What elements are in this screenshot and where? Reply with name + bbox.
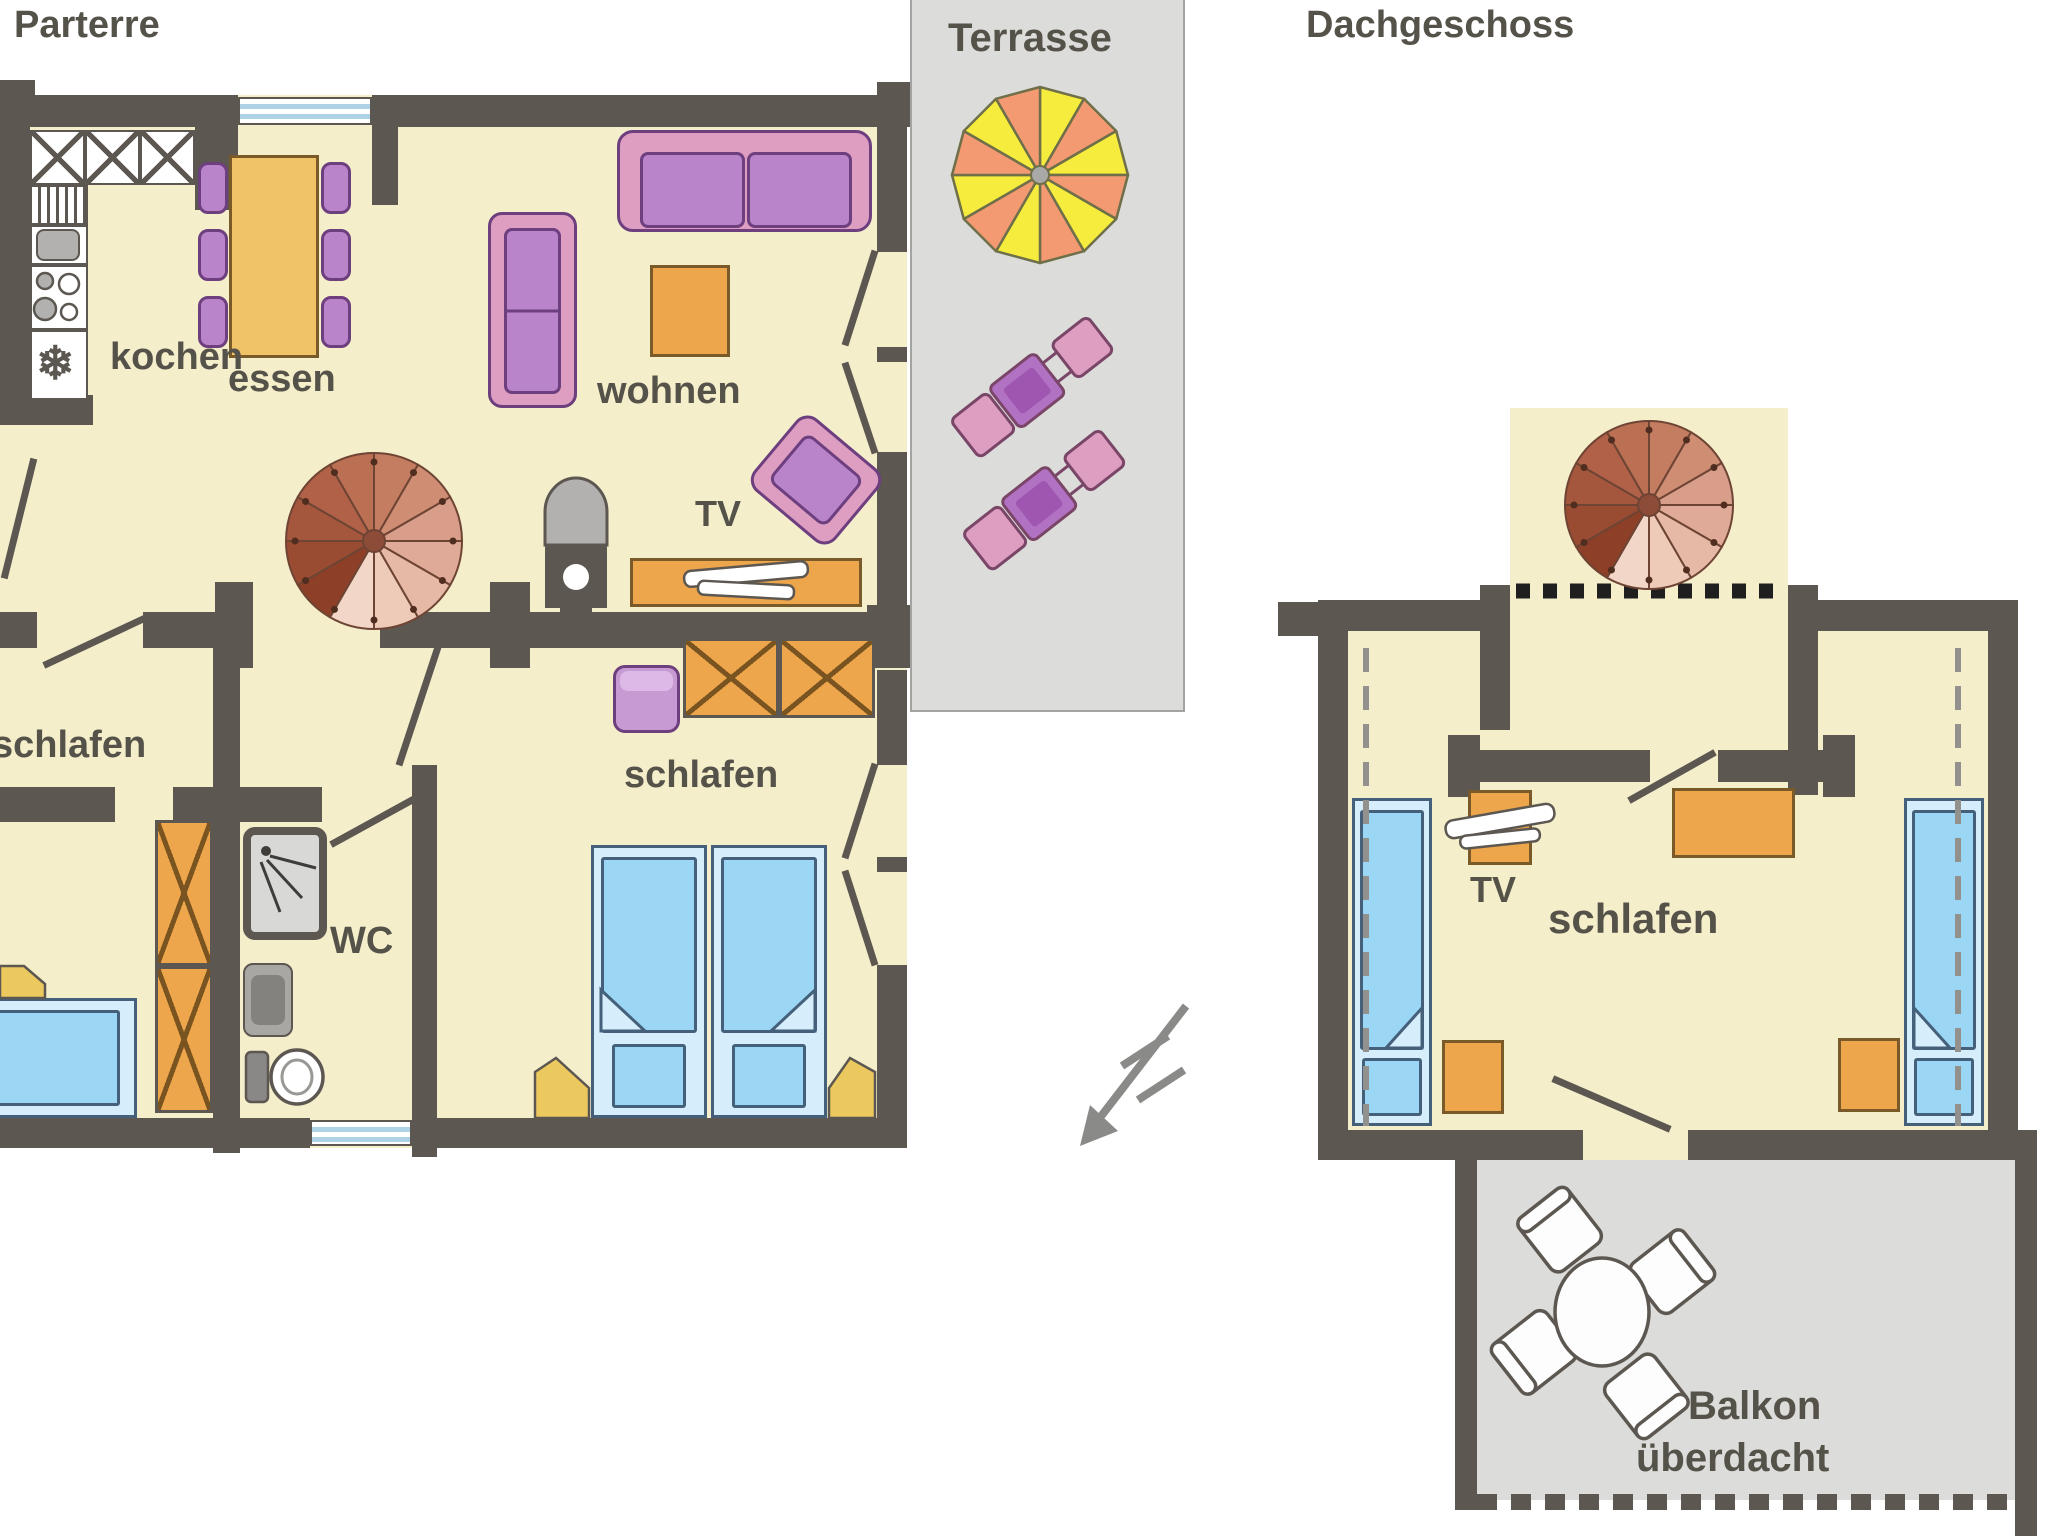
bed-pillow: [612, 1044, 686, 1108]
tv-label-dach: TV: [1470, 872, 1516, 908]
living-label: wohnen: [597, 372, 741, 410]
bed-blanket: [721, 857, 817, 1033]
wall: [0, 95, 30, 425]
wall: [213, 648, 240, 1153]
north-arrow-icon: [1080, 1006, 1186, 1146]
tv-stand: [1468, 790, 1532, 865]
wall: [877, 670, 907, 765]
kitchen-cabinet: [140, 130, 195, 185]
wardrobe: [155, 966, 213, 1113]
wardrobe: [779, 638, 875, 718]
wall-pillar: [372, 127, 398, 205]
sofa-small-cushion: [504, 228, 561, 394]
tv-label-parterre: TV: [695, 496, 741, 532]
terrace-area: [910, 0, 1185, 712]
tv-sideboard: [630, 558, 862, 607]
kitchen-cabinet: [30, 130, 85, 185]
sofa-large-cushion: [640, 152, 745, 228]
window: [238, 97, 372, 125]
wall: [877, 82, 910, 95]
wall: [0, 612, 37, 648]
wall: [0, 95, 238, 127]
nightstand: [1838, 1038, 1900, 1112]
kitchen-drainer: [30, 185, 88, 225]
wall: [1455, 1130, 1477, 1510]
wall: [877, 857, 907, 872]
wall: [1318, 600, 1348, 1160]
dining-chair: [321, 162, 351, 214]
kitchen-stove: [30, 265, 88, 330]
bed-blanket: [601, 857, 697, 1033]
wardrobe: [683, 638, 779, 718]
nightstand: [1442, 1040, 1504, 1114]
balcony-label-1: Balkon: [1688, 1386, 1821, 1426]
window: [310, 1120, 412, 1146]
sofa-large-cushion: [747, 152, 852, 228]
dining-label: essen: [228, 360, 336, 398]
wall: [877, 452, 907, 614]
dining-chair: [321, 296, 351, 348]
dining-table: [229, 155, 319, 358]
floor-title-parterre: Parterre: [14, 6, 160, 44]
pouf-top: [620, 671, 673, 691]
bed-pillow: [732, 1044, 806, 1108]
wc-sink-basin: [251, 975, 285, 1025]
dining-chair: [198, 229, 228, 281]
wall: [1448, 750, 1650, 782]
wall: [1823, 735, 1855, 797]
wall: [0, 80, 35, 95]
terrace-label: Terrasse: [948, 18, 1112, 58]
wall: [412, 1118, 907, 1148]
cabinet: [1672, 788, 1795, 858]
wall: [173, 787, 322, 822]
bed-blanket: [1360, 810, 1424, 1050]
shower: [243, 827, 327, 940]
coffee-table: [650, 265, 730, 357]
wall: [1318, 1130, 1583, 1160]
dining-chair: [321, 229, 351, 281]
bed-pillow: [1914, 1058, 1974, 1116]
wall: [2015, 1130, 2037, 1536]
wall: [877, 347, 907, 362]
wall: [1278, 602, 1318, 636]
wall: [1688, 1130, 2018, 1160]
bed-blanket: [0, 1010, 120, 1106]
bed-blanket: [1912, 810, 1976, 1050]
kitchen-label: kochen: [110, 338, 243, 376]
kitchen-sink: [36, 229, 80, 261]
wall: [877, 127, 907, 252]
dach-stair-zone-floor: [1510, 408, 1788, 608]
bedroom-dach-label: schlafen: [1548, 898, 1718, 940]
wall-pillar: [490, 582, 530, 668]
wall: [1718, 750, 1788, 782]
bedroom-right-label: schlafen: [624, 756, 778, 794]
floor-plan-canvas: ❄: [0, 0, 2048, 1536]
bedroom-left-label: schlafen: [0, 726, 146, 764]
freezer-icon: ❄: [36, 340, 75, 386]
wall: [412, 765, 437, 1157]
wall: [372, 95, 910, 127]
wc-label: WC: [330, 922, 393, 960]
dining-chair: [198, 162, 228, 214]
wall: [0, 1118, 310, 1148]
wall: [1788, 600, 2018, 631]
floor-title-dachgeschoss: Dachgeschoss: [1306, 6, 1574, 44]
wardrobe: [155, 820, 213, 966]
bed-pillow: [1362, 1058, 1422, 1116]
wall-pillar: [1480, 585, 1510, 730]
kitchen-cabinet: [85, 130, 140, 185]
balcony-label-2: überdacht: [1636, 1438, 1829, 1478]
wall: [1988, 600, 2018, 1160]
wall: [0, 787, 115, 822]
